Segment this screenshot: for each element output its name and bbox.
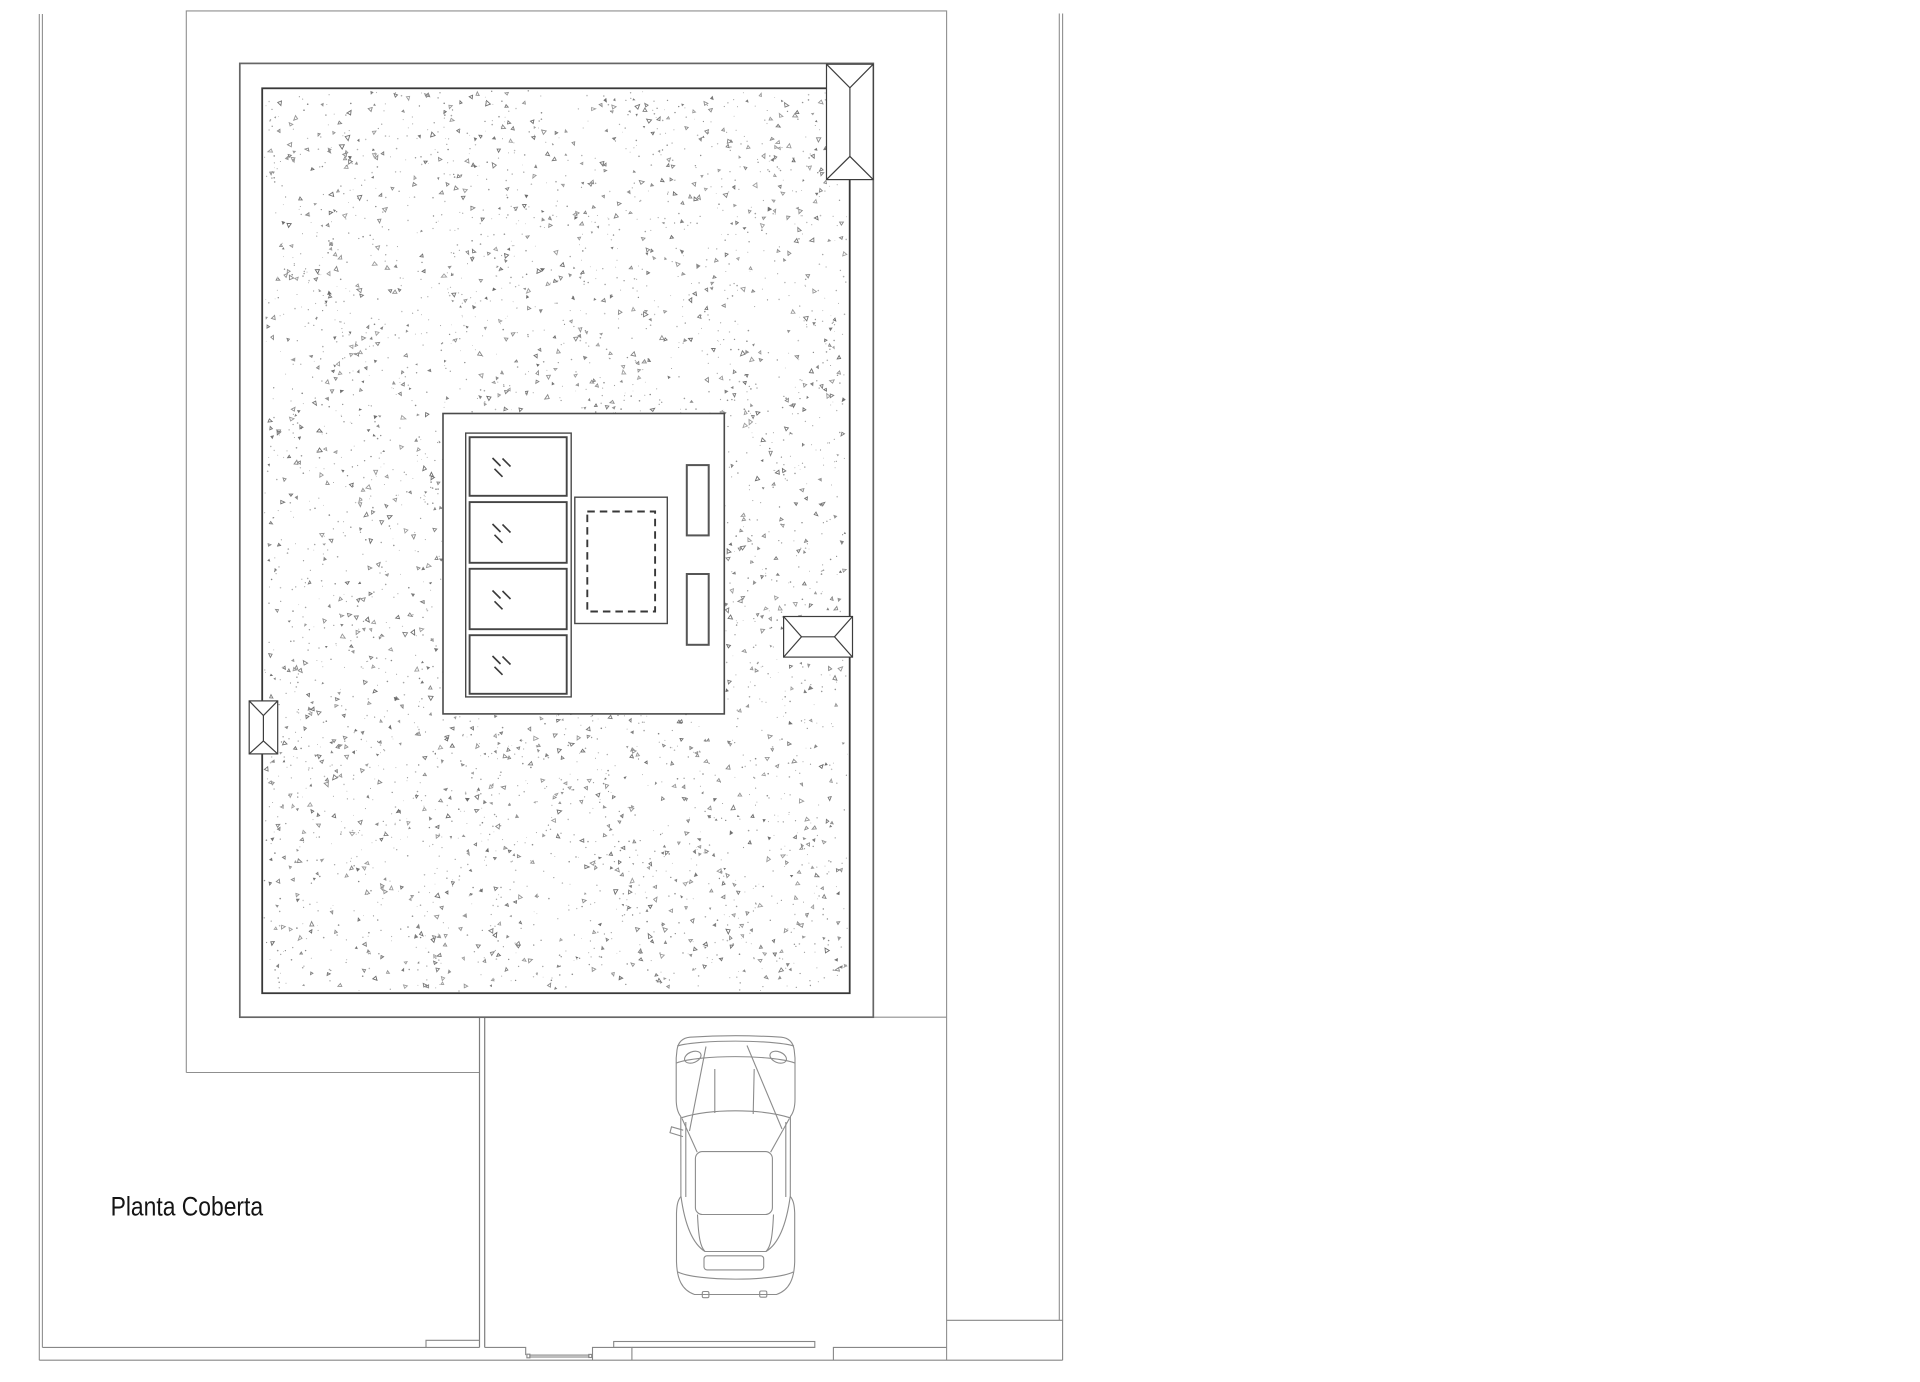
svg-text:Planta Coberta: Planta Coberta [111, 1192, 264, 1222]
